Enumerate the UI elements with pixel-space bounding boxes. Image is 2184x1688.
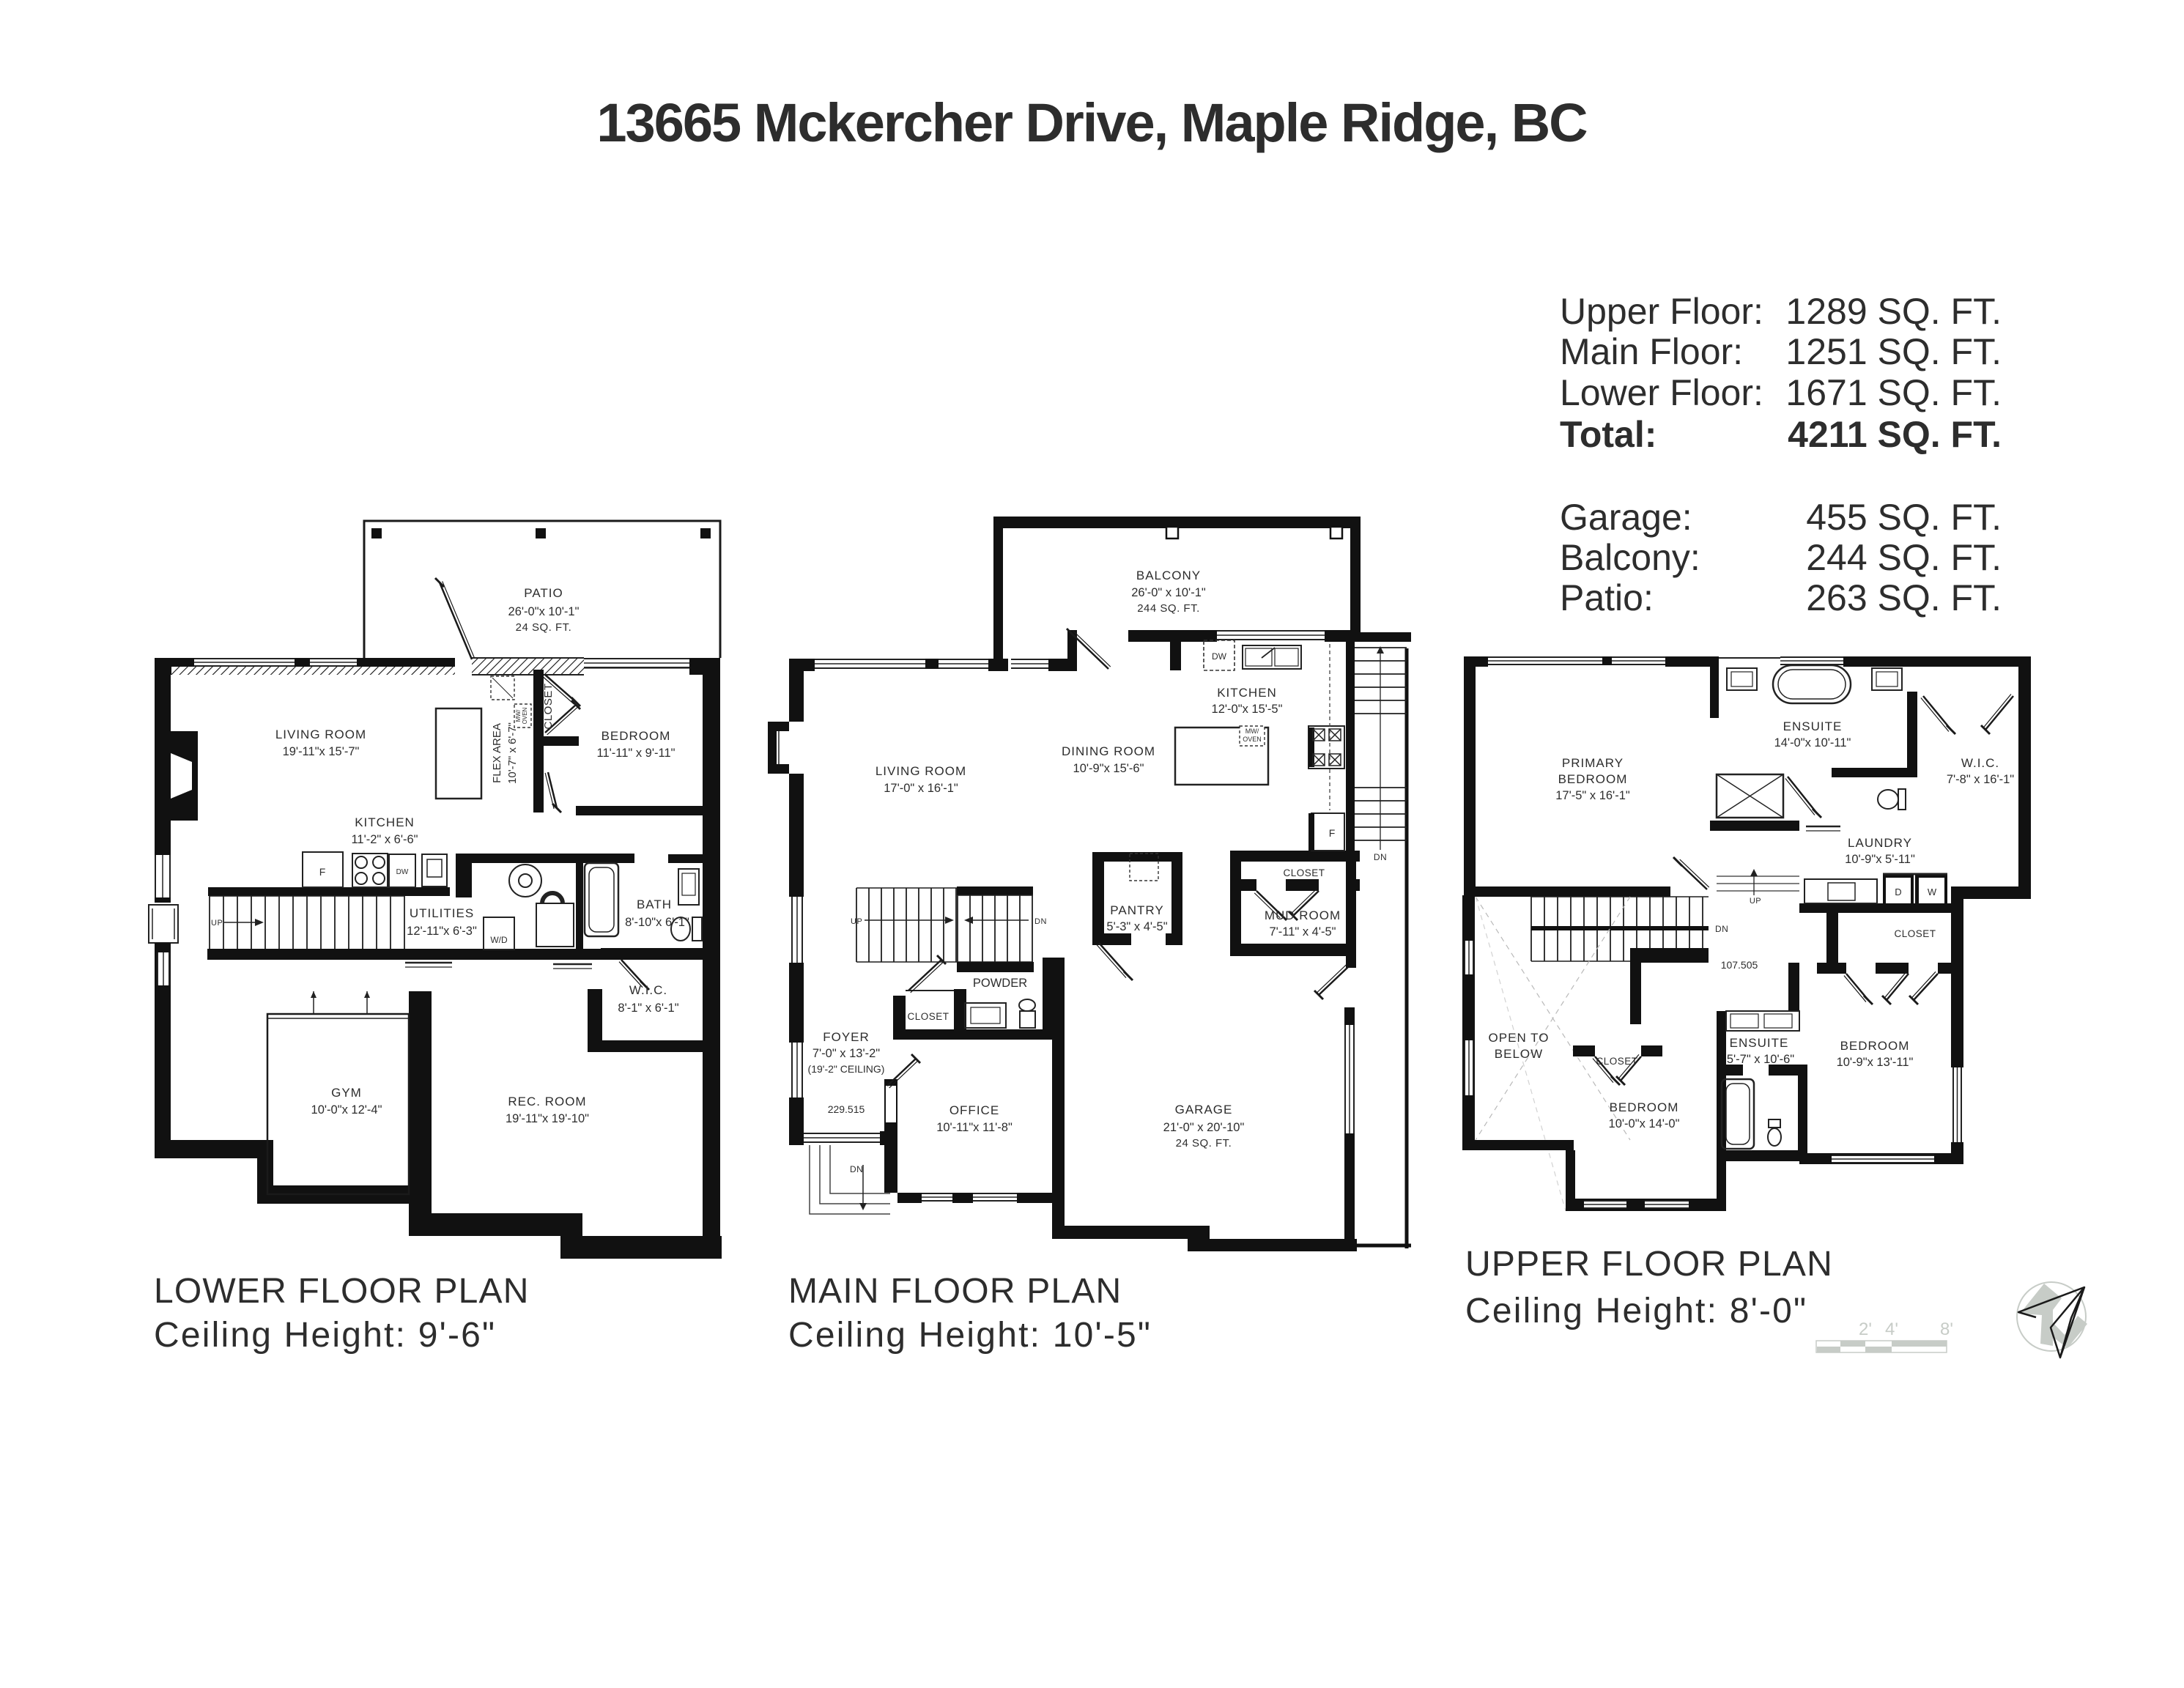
- svg-text:DN: DN: [850, 1164, 863, 1174]
- svg-text:BEDROOM: BEDROOM: [601, 729, 671, 743]
- svg-text:MW/: MW/: [515, 709, 522, 722]
- svg-text:10'-9"x 13'-11": 10'-9"x 13'-11": [1837, 1056, 1914, 1069]
- svg-text:F: F: [1329, 827, 1336, 839]
- svg-text:PANTRY: PANTRY: [1110, 903, 1163, 917]
- svg-text:Ceiling Height: 10'-5": Ceiling Height: 10'-5": [788, 1316, 1152, 1355]
- svg-text:KITCHEN: KITCHEN: [1217, 686, 1277, 700]
- svg-text:Ceiling Height: 9'-6": Ceiling Height: 9'-6": [154, 1316, 496, 1355]
- svg-text:DW: DW: [1212, 651, 1227, 662]
- svg-text:DN: DN: [1715, 924, 1728, 934]
- svg-text:1251 SQ. FT.: 1251 SQ. FT.: [1785, 331, 2002, 372]
- svg-text:BEDROOM: BEDROOM: [1558, 772, 1628, 786]
- svg-text:PATIO: PATIO: [524, 586, 563, 600]
- svg-text:Upper Floor:: Upper Floor:: [1560, 291, 1763, 332]
- svg-text:26'-0" x 10'-1": 26'-0" x 10'-1": [1131, 586, 1206, 599]
- svg-text:10'-9"x 5'-11": 10'-9"x 5'-11": [1845, 853, 1915, 866]
- svg-text:CLOSET: CLOSET: [907, 1011, 949, 1022]
- svg-text:D: D: [1895, 886, 1901, 897]
- svg-text:DINING ROOM: DINING ROOM: [1062, 744, 1155, 758]
- svg-text:8': 8': [1940, 1319, 1953, 1339]
- svg-text:1671 SQ. FT.: 1671 SQ. FT.: [1785, 372, 2002, 413]
- svg-text:Lower Floor:: Lower Floor:: [1560, 372, 1763, 413]
- svg-text:UTILITIES: UTILITIES: [410, 906, 474, 920]
- svg-text:DN: DN: [1374, 852, 1387, 862]
- svg-text:10'-0"x 14'-0": 10'-0"x 14'-0": [1609, 1117, 1680, 1130]
- svg-text:19'-11"x 15'-7": 19'-11"x 15'-7": [283, 745, 360, 758]
- svg-text:17'-5" x 16'-1": 17'-5" x 16'-1": [1555, 789, 1630, 802]
- svg-text:229.515: 229.515: [828, 1103, 865, 1115]
- svg-text:12'-11"x 6'-3": 12'-11"x 6'-3": [407, 925, 477, 938]
- svg-text:W/D: W/D: [490, 935, 508, 945]
- svg-text:Garage:: Garage:: [1560, 497, 1692, 538]
- svg-text:11'-2" x 6'-6": 11'-2" x 6'-6": [351, 833, 418, 846]
- svg-text:CLOSET: CLOSET: [1894, 928, 1936, 939]
- svg-text:UP: UP: [211, 919, 223, 928]
- svg-text:14'-0"x 10'-11": 14'-0"x 10'-11": [1774, 736, 1851, 749]
- svg-text:Main Floor:: Main Floor:: [1560, 331, 1743, 372]
- svg-text:BEDROOM: BEDROOM: [1840, 1039, 1910, 1053]
- svg-text:455 SQ. FT.: 455 SQ. FT.: [1806, 497, 2002, 538]
- svg-text:(19'-2" CEILING): (19'-2" CEILING): [808, 1063, 885, 1075]
- svg-text:LIVING ROOM: LIVING ROOM: [275, 728, 366, 741]
- svg-text:UPPER FLOOR PLAN: UPPER FLOOR PLAN: [1465, 1245, 1833, 1284]
- svg-text:MAIN FLOOR PLAN: MAIN FLOOR PLAN: [788, 1272, 1122, 1311]
- svg-text:10'-0"x 12'-4": 10'-0"x 12'-4": [311, 1103, 382, 1117]
- svg-text:W: W: [1928, 886, 1937, 897]
- svg-text:21'-0" x 20'-10": 21'-0" x 20'-10": [1163, 1121, 1245, 1134]
- svg-text:244 SQ. FT.: 244 SQ. FT.: [1137, 602, 1200, 615]
- svg-text:LIVING ROOM: LIVING ROOM: [876, 764, 966, 778]
- svg-text:ENSUITE: ENSUITE: [1783, 719, 1843, 733]
- svg-text:UP: UP: [851, 917, 862, 926]
- svg-text:OPEN TO: OPEN TO: [1489, 1031, 1550, 1045]
- svg-text:19'-11"x 19'-10": 19'-11"x 19'-10": [506, 1112, 589, 1125]
- svg-text:Patio:: Patio:: [1560, 577, 1654, 618]
- svg-text:F: F: [319, 866, 326, 878]
- svg-text:PRIMARY: PRIMARY: [1562, 756, 1624, 770]
- svg-text:Ceiling Height: 8'-0": Ceiling Height: 8'-0": [1465, 1292, 1807, 1330]
- svg-text:BEDROOM: BEDROOM: [1610, 1100, 1679, 1114]
- svg-text:11'-11" x 9'-11": 11'-11" x 9'-11": [597, 747, 675, 760]
- svg-text:GYM: GYM: [331, 1086, 362, 1100]
- svg-text:CLOSET: CLOSET: [1283, 867, 1325, 878]
- svg-text:LAUNDRY: LAUNDRY: [1848, 836, 1912, 850]
- svg-text:8'-10"x 6'-1": 8'-10"x 6'-1": [625, 916, 689, 929]
- svg-text:5'-3" x 4'-5": 5'-3" x 4'-5": [1106, 920, 1167, 933]
- svg-text:5'-7" x 10'-6": 5'-7" x 10'-6": [1727, 1053, 1794, 1066]
- svg-text:7'-11" x 4'-5": 7'-11" x 4'-5": [1269, 925, 1336, 939]
- svg-text:BELOW: BELOW: [1495, 1047, 1543, 1061]
- svg-text:KITCHEN: KITCHEN: [355, 815, 415, 829]
- svg-text:GARAGE: GARAGE: [1175, 1103, 1233, 1117]
- svg-text:10'-7" x 6'-7": 10'-7" x 6'-7": [506, 722, 519, 784]
- svg-text:24 SQ. FT.: 24 SQ. FT.: [1176, 1137, 1232, 1150]
- svg-text:BATH: BATH: [637, 897, 672, 911]
- svg-text:W.I.C.: W.I.C.: [1961, 756, 1999, 770]
- svg-text:CLOSET: CLOSET: [542, 683, 555, 729]
- svg-text:244 SQ. FT.: 244 SQ. FT.: [1806, 537, 2002, 578]
- svg-text:107.505: 107.505: [1721, 959, 1758, 971]
- svg-text:MUD ROOM: MUD ROOM: [1265, 908, 1341, 922]
- svg-text:UP: UP: [1750, 897, 1761, 906]
- svg-text:DW: DW: [396, 868, 409, 876]
- svg-text:13665 Mckercher Drive, Maple R: 13665 Mckercher Drive, Maple Ridge, BC: [596, 92, 1587, 153]
- svg-text:Total:: Total:: [1560, 414, 1656, 455]
- svg-text:26'-0"x 10'-1": 26'-0"x 10'-1": [508, 605, 580, 618]
- svg-text:W.I.C.: W.I.C.: [629, 983, 667, 997]
- svg-text:10'-9"x 15'-6": 10'-9"x 15'-6": [1073, 762, 1144, 775]
- svg-text:7'-0" x 13'-2": 7'-0" x 13'-2": [812, 1047, 880, 1060]
- svg-text:REC. ROOM: REC. ROOM: [508, 1095, 586, 1108]
- svg-text:POWDER: POWDER: [973, 977, 1027, 990]
- svg-text:4211 SQ. FT.: 4211 SQ. FT.: [1788, 414, 2002, 455]
- svg-text:1289 SQ. FT.: 1289 SQ. FT.: [1785, 291, 2002, 332]
- svg-text:ENSUITE: ENSUITE: [1730, 1036, 1789, 1050]
- svg-text:8'-1" x 6'-1": 8'-1" x 6'-1": [618, 1002, 678, 1015]
- svg-text:7'-8" x 16'-1": 7'-8" x 16'-1": [1947, 773, 2014, 786]
- svg-text:OFFICE: OFFICE: [950, 1103, 999, 1117]
- svg-text:263 SQ. FT.: 263 SQ. FT.: [1806, 577, 2002, 618]
- svg-text:4': 4': [1885, 1319, 1898, 1339]
- svg-text:FOYER: FOYER: [823, 1030, 870, 1044]
- svg-text:CLOSET: CLOSET: [1596, 1056, 1637, 1067]
- svg-text:Balcony:: Balcony:: [1560, 537, 1700, 578]
- svg-text:10'-11"x 11'-8": 10'-11"x 11'-8": [936, 1121, 1013, 1134]
- svg-text:17'-0" x 16'-1": 17'-0" x 16'-1": [884, 782, 958, 795]
- svg-text:OVEN: OVEN: [522, 707, 528, 724]
- svg-text:LOWER FLOOR PLAN: LOWER FLOOR PLAN: [154, 1272, 530, 1311]
- svg-text:2': 2': [1859, 1319, 1872, 1339]
- svg-text:MW/: MW/: [1245, 728, 1259, 735]
- svg-text:FLEX AREA: FLEX AREA: [491, 723, 503, 783]
- svg-text:DN: DN: [1034, 917, 1047, 926]
- svg-text:OVEN: OVEN: [1243, 736, 1262, 743]
- svg-text:24 SQ. FT.: 24 SQ. FT.: [516, 621, 572, 634]
- svg-text:12'-0"x 15'-5": 12'-0"x 15'-5": [1212, 703, 1283, 716]
- svg-text:BALCONY: BALCONY: [1136, 569, 1201, 582]
